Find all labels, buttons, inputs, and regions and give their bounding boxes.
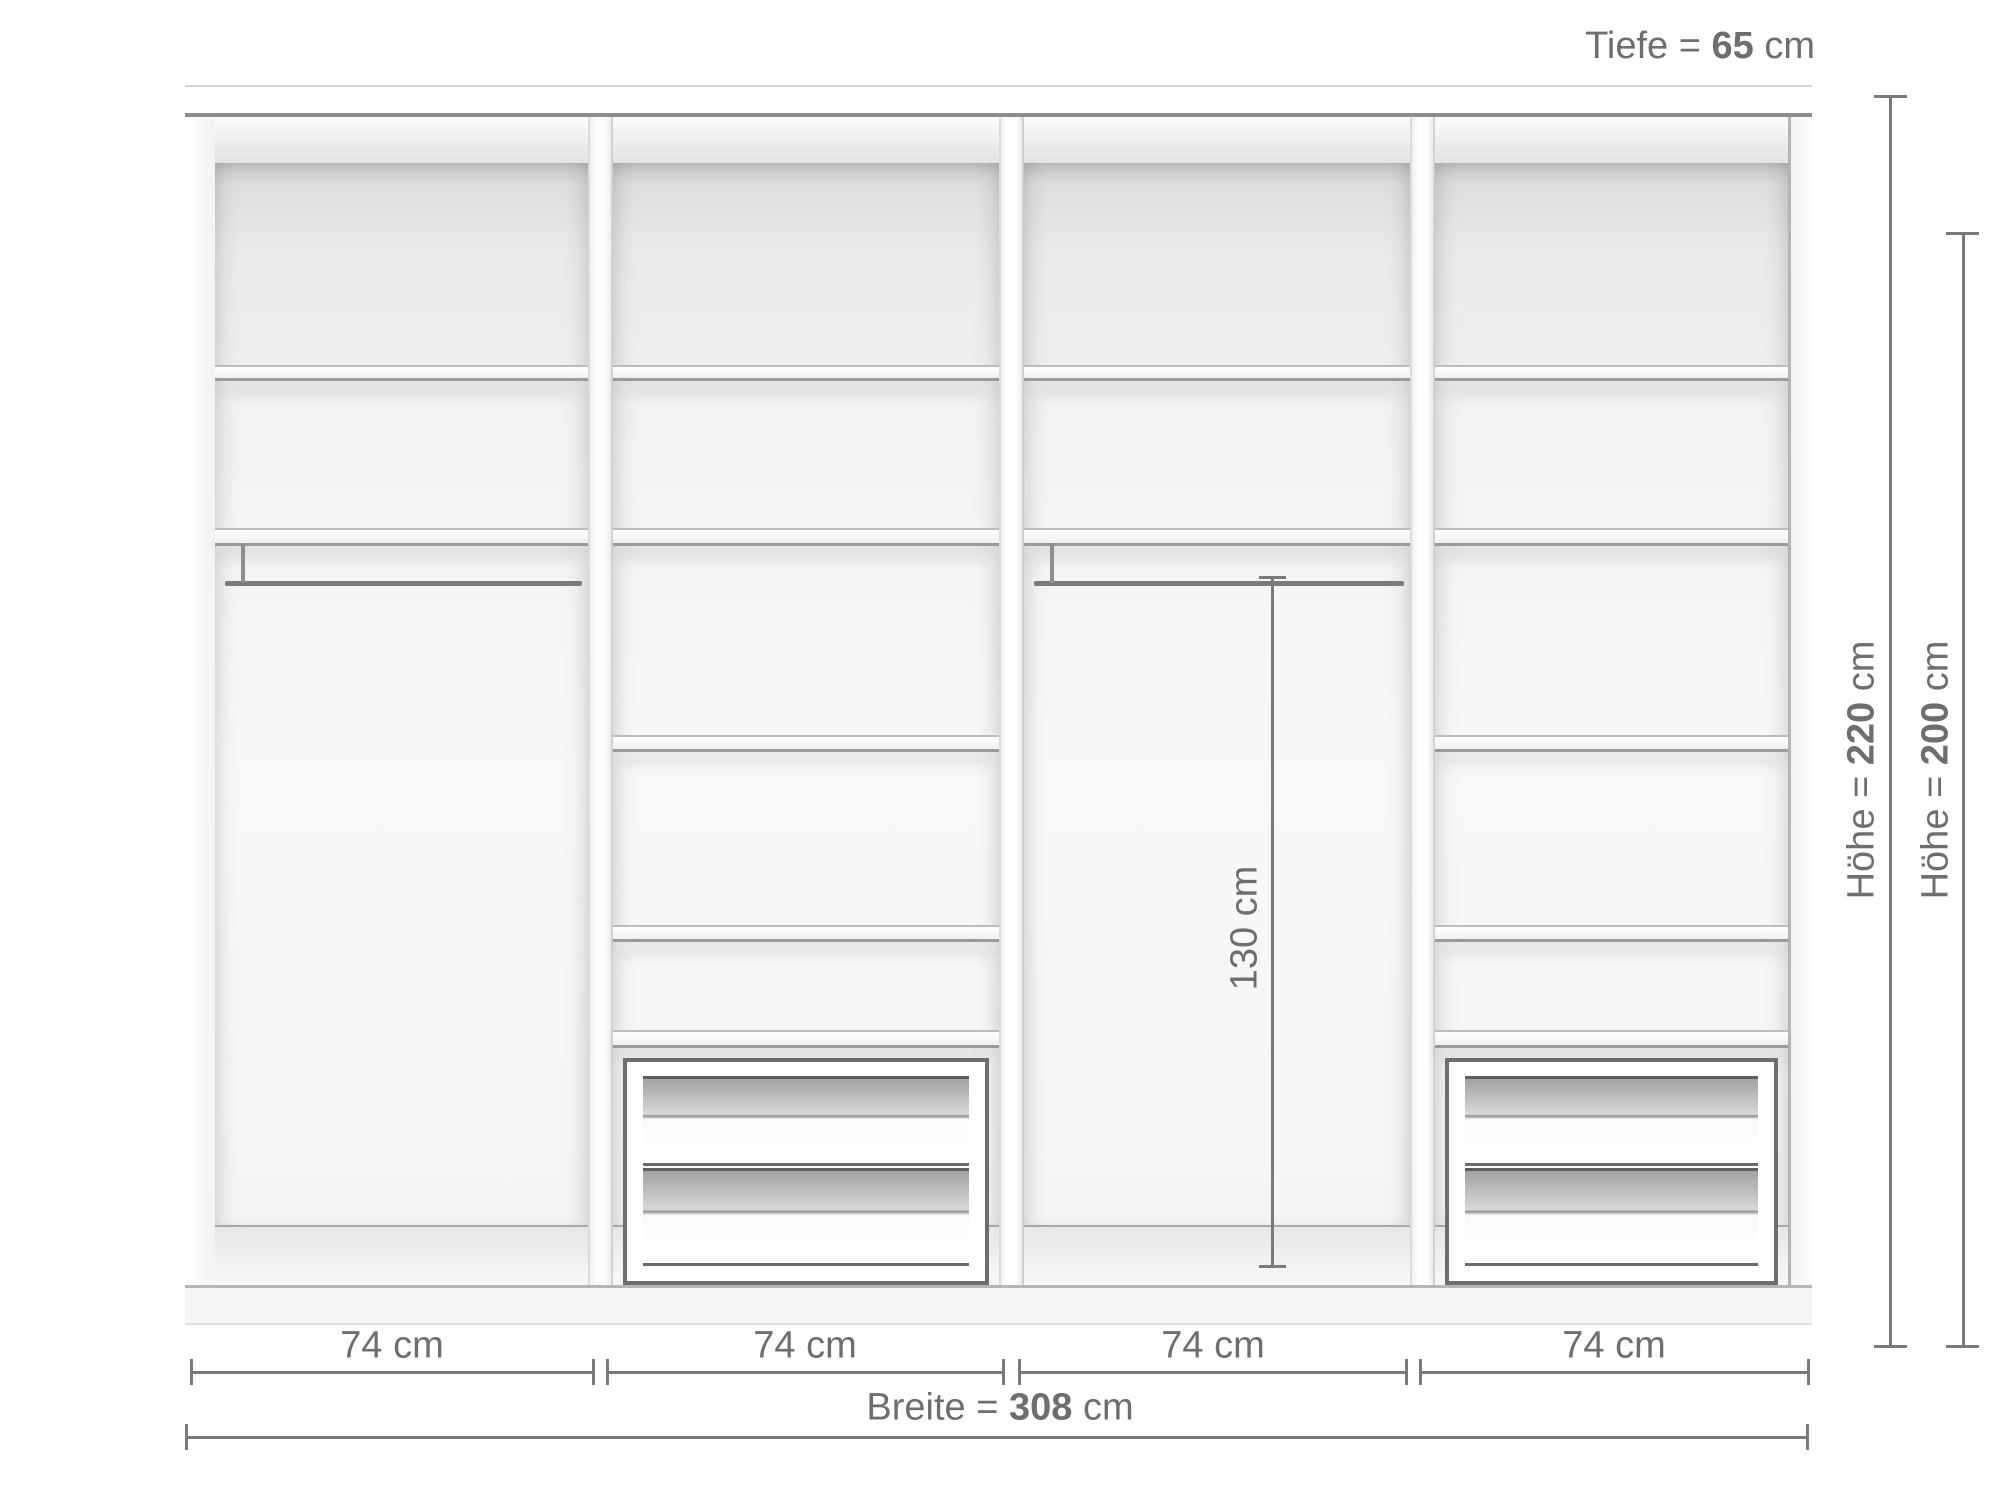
shelf: [1435, 735, 1788, 752]
drawer: [643, 1168, 969, 1266]
rail-bracket: [241, 543, 245, 583]
dim-inner-height-prefix: Höhe =: [1915, 765, 1957, 899]
wardrobe-body: [185, 85, 1812, 1325]
rail-bracket: [1050, 543, 1054, 583]
dim-tick: [1018, 1359, 1021, 1385]
dim-total-width-line: [185, 1436, 1809, 1439]
dim-total-width-prefix: Breite =: [866, 1387, 1009, 1429]
ceiling-panel: [613, 117, 999, 165]
back-panel: [1024, 163, 1410, 1225]
shelf: [1435, 365, 1788, 381]
shelf: [1435, 925, 1788, 942]
shelf: [613, 1030, 999, 1048]
drawer: [1465, 1076, 1758, 1166]
section-1: [215, 117, 588, 1285]
side-panel-right: [1788, 117, 1815, 1285]
section-3: [1024, 117, 1410, 1285]
top-board: [185, 85, 1812, 117]
shelf: [215, 365, 588, 381]
dim-tick: [1946, 1345, 1979, 1348]
shelf: [1435, 1030, 1788, 1048]
shelf: [1435, 528, 1788, 546]
dim-outer-height-value: 220: [1841, 702, 1883, 765]
dim-depth-prefix: Tiefe =: [1585, 25, 1711, 67]
drawer: [1465, 1168, 1758, 1266]
dim-outer-height-line: [1889, 97, 1892, 1348]
dim-total-width-value: 308: [1009, 1387, 1072, 1429]
ceiling-panel: [215, 117, 588, 165]
dim-section-width-line-1: [190, 1371, 595, 1374]
dim-depth-value: 65: [1712, 25, 1754, 67]
dim-total-width-unit: cm: [1072, 1387, 1133, 1429]
dim-section-width-line-4: [1419, 1371, 1810, 1374]
clothes-rail: [225, 581, 582, 586]
dim-inner-height-unit: cm: [1915, 641, 1957, 702]
shelf: [613, 528, 999, 546]
dim-tick: [606, 1359, 609, 1385]
dim-inner-height-value: 200: [1915, 702, 1957, 765]
plinth: [185, 1285, 1812, 1325]
dim-tick: [185, 1424, 188, 1450]
dim-tick: [1807, 1359, 1810, 1385]
shelf: [215, 528, 588, 546]
section-2: [613, 117, 999, 1285]
dim-outer-height-prefix: Höhe =: [1841, 765, 1883, 899]
divider: [1410, 117, 1435, 1285]
dim-depth-label: Tiefe = 65 cm: [1350, 26, 1815, 68]
dim-tick: [592, 1359, 595, 1385]
shelf: [1024, 528, 1410, 546]
drawer-unit: [623, 1058, 989, 1285]
side-panel-left: [185, 117, 217, 1285]
dim-rail-height-line: [1271, 578, 1274, 1268]
dim-tick: [1874, 1345, 1907, 1348]
dim-tick: [1419, 1359, 1422, 1385]
floor-panel: [215, 1225, 588, 1285]
drawer: [643, 1076, 969, 1166]
drawer-unit: [1445, 1058, 1778, 1285]
shelf: [1024, 365, 1410, 381]
ceiling-panel: [1435, 117, 1788, 165]
dim-tick: [190, 1359, 193, 1385]
dim-section-width-line-3: [1018, 1371, 1408, 1374]
divider: [999, 117, 1024, 1285]
floor-panel: [1024, 1225, 1410, 1285]
back-panel: [215, 163, 588, 1225]
shelf: [613, 735, 999, 752]
dim-tick: [1946, 232, 1979, 235]
dim-tick: [1259, 1265, 1286, 1268]
wardrobe-technical-drawing: Tiefe = 65 cm Höhe = 220 cm Höhe = 200 c…: [0, 0, 2000, 1500]
dim-outer-height-unit: cm: [1841, 641, 1883, 702]
dim-tick: [1259, 576, 1286, 579]
shelf: [613, 925, 999, 942]
dim-rail-height-text: 130 cm: [1224, 866, 1267, 991]
dim-tick: [1405, 1359, 1408, 1385]
dim-section-width-line-2: [606, 1371, 1005, 1374]
dim-tick: [1874, 95, 1907, 98]
dim-tick: [1806, 1424, 1809, 1450]
dim-inner-height-line: [1962, 234, 1965, 1348]
divider: [588, 117, 613, 1285]
shelf: [613, 365, 999, 381]
dim-tick: [1002, 1359, 1005, 1385]
dim-depth-unit: cm: [1754, 25, 1815, 67]
ceiling-panel: [1024, 117, 1410, 165]
clothes-rail: [1034, 581, 1404, 586]
section-4: [1435, 117, 1788, 1285]
